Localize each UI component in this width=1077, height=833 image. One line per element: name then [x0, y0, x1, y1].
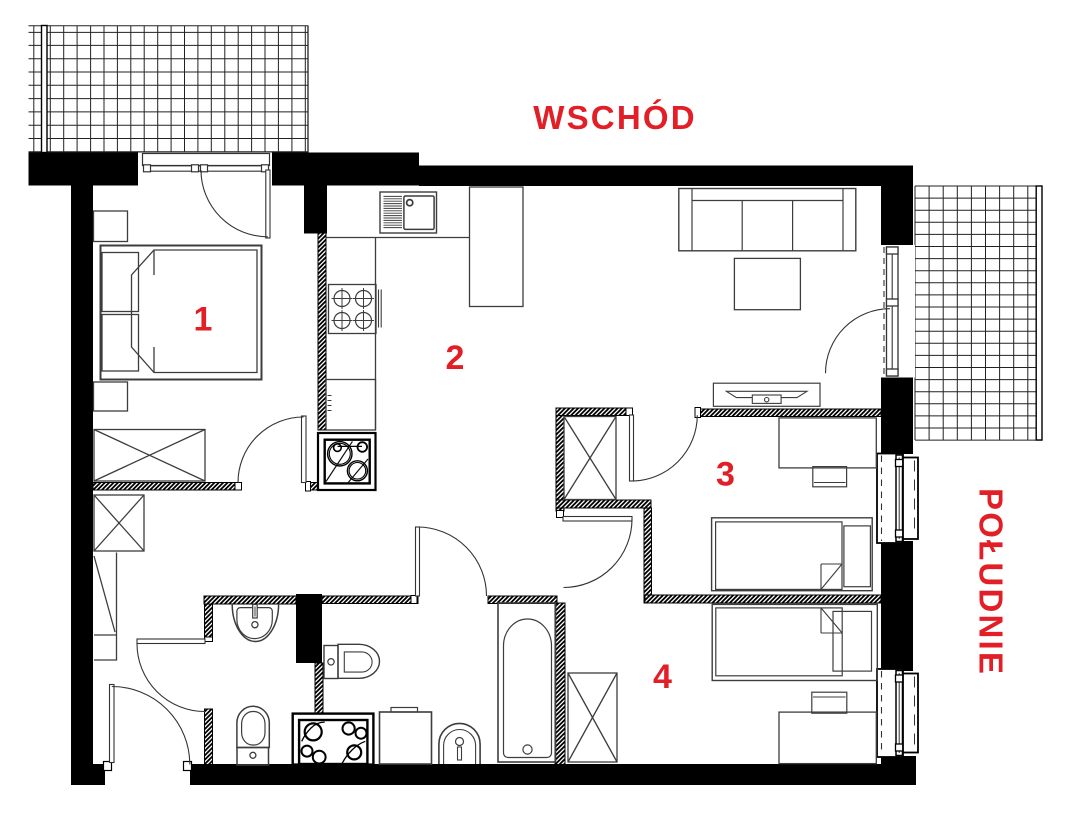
svg-text:4: 4 [653, 658, 672, 696]
svg-text:POŁUDNIE: POŁUDNIE [973, 488, 1010, 676]
svg-text:1: 1 [194, 301, 213, 339]
svg-text:3: 3 [716, 456, 735, 494]
svg-text:2: 2 [446, 339, 465, 377]
svg-text:WSCHÓD: WSCHÓD [533, 99, 697, 136]
